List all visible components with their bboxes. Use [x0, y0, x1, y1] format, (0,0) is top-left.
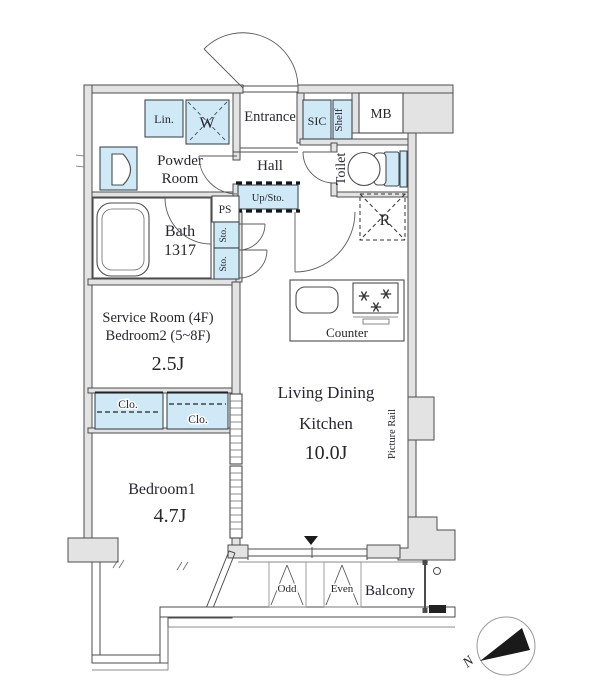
compass: N	[460, 617, 535, 675]
kitchen: R Counter	[290, 194, 405, 341]
window-marker	[304, 536, 318, 545]
drain	[434, 568, 441, 575]
service-room: Service Room (4F) Bedroom2 (5~8F) 2.5J	[102, 310, 213, 375]
sliding-door-panels	[230, 394, 242, 538]
north-arrow-icon	[480, 628, 530, 661]
storage2-label: Sto.	[219, 256, 229, 271]
ldk-label-1: Living Dining	[278, 383, 375, 402]
washer-label: W	[199, 115, 215, 132]
linen-label: Lin.	[154, 112, 174, 126]
storage-doors	[239, 224, 267, 278]
bedroom1-label: Bedroom1	[128, 481, 196, 498]
kitchen-sink	[296, 287, 338, 313]
powder-label-2: Room	[162, 171, 199, 187]
toilet-label: Toilet	[334, 153, 349, 186]
powder-room: Lin. W Powder Room	[100, 100, 237, 194]
upsto-label: Up/Sto.	[252, 193, 284, 204]
odd-label: Odd	[278, 583, 297, 595]
entrance-label: Entrance	[244, 109, 296, 125]
pillar-top-right	[403, 93, 453, 133]
powder-label-1: Powder	[157, 153, 203, 169]
balcony-label: Balcony	[365, 583, 415, 599]
shelf-label: Shelf	[333, 108, 345, 132]
living-dining-kitchen: Living Dining Kitchen 10.0J Picture Rail	[278, 383, 398, 545]
even-label: Even	[331, 583, 354, 595]
hall-label: Hall	[257, 158, 283, 174]
toilet-bowl	[348, 153, 380, 186]
balcony: Odd Even Balcony	[92, 560, 455, 670]
pillar-right	[408, 397, 434, 440]
sic-label: SIC	[308, 114, 327, 128]
refrigerator-label: R	[380, 212, 391, 229]
counter-label: Counter	[326, 325, 369, 340]
picture-rail-label: Picture Rail	[387, 409, 398, 459]
service-area-label: 2.5J	[152, 353, 185, 375]
floor-plan-page: Entrance SIC Shelf MB Lin. W Powder Room…	[0, 0, 610, 696]
entrance-door	[204, 33, 298, 88]
bathtub	[97, 203, 149, 276]
bedroom1-area-label: 4.7J	[154, 505, 187, 527]
diagonal-window	[205, 551, 235, 613]
mb-label: MB	[370, 106, 391, 121]
pillar-bottom-left	[68, 538, 118, 562]
service-label-2: Bedroom2 (5~8F)	[106, 328, 211, 344]
ldk-area-label: 10.0J	[305, 442, 348, 464]
hall-ldk-door	[295, 212, 355, 272]
floor-plan: Entrance SIC Shelf MB Lin. W Powder Room…	[0, 0, 610, 696]
toilet-door	[303, 152, 334, 183]
evacuation-hatch-even: Even	[324, 562, 361, 607]
ldk-label-2: Kitchen	[299, 414, 353, 433]
toilet-window	[400, 151, 407, 187]
evacuation-hatch-odd: Odd	[269, 562, 306, 607]
ps-label: PS	[219, 204, 232, 216]
storage1-label: Sto.	[219, 227, 229, 242]
drain-hatch	[429, 605, 446, 613]
powder-door	[199, 156, 237, 194]
void-tick	[177, 562, 188, 570]
toilet-room: Toilet	[303, 151, 407, 187]
closets: Clo. Clo.	[95, 393, 228, 430]
closet1-label: Clo.	[118, 399, 138, 411]
pillar-bottom-right	[398, 517, 455, 560]
compass-north-label: N	[460, 653, 478, 672]
bath-size-label: 1317	[164, 242, 196, 259]
service-label-1: Service Room (4F)	[102, 310, 213, 326]
closet2-label: Clo.	[188, 414, 208, 426]
